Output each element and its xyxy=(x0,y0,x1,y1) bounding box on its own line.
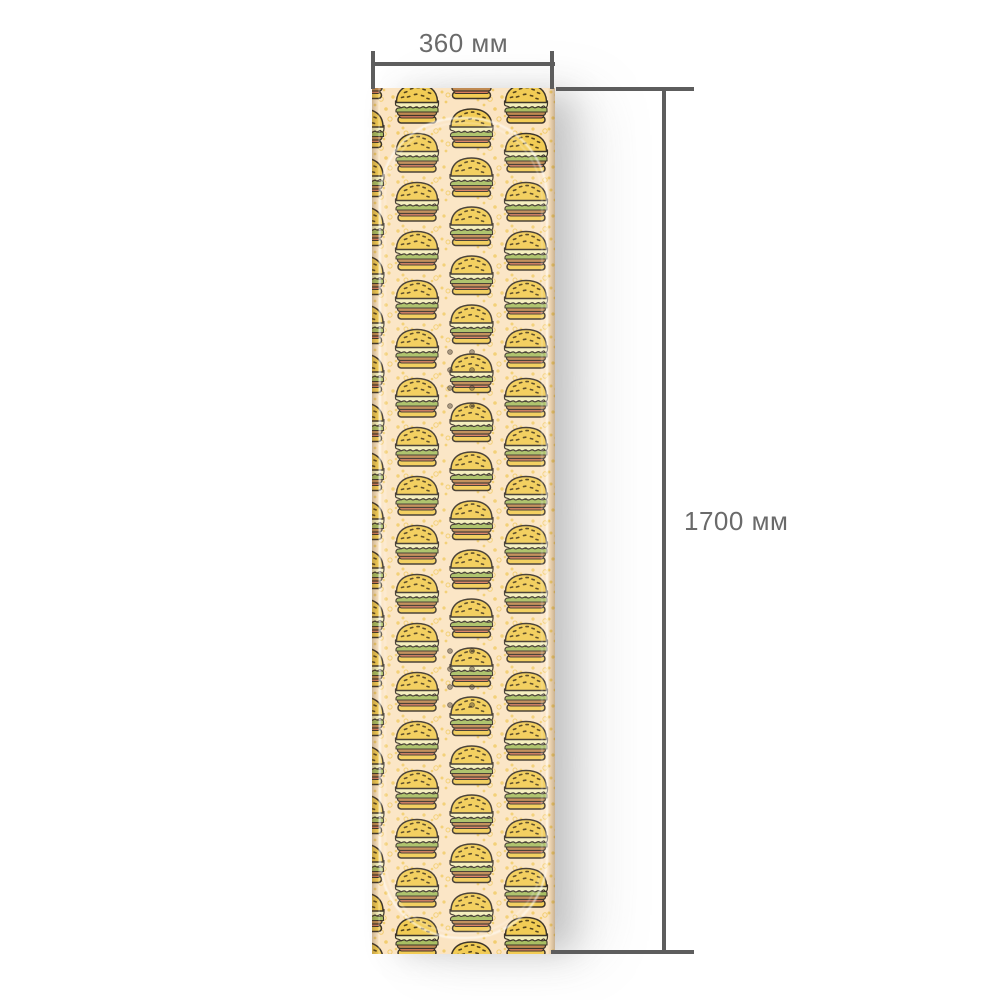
width-dimension-label: 360 мм xyxy=(372,28,555,59)
burger-pattern-graphic xyxy=(372,88,555,954)
height-dimension-line xyxy=(662,87,666,954)
board-outline xyxy=(380,118,547,938)
width-dimension-line xyxy=(372,62,555,66)
left-edge-highlight xyxy=(379,88,380,954)
height-dimension-cap-top xyxy=(556,87,694,91)
height-dimension-label: 1700 мм xyxy=(684,506,788,537)
product-dimension-diagram: 360 мм 1700 мм xyxy=(0,0,1000,1000)
left-edge-shade xyxy=(372,88,379,954)
height-dimension-cap-bottom xyxy=(551,950,694,954)
right-edge-shade xyxy=(548,88,555,954)
wrap-sheet xyxy=(372,88,555,954)
